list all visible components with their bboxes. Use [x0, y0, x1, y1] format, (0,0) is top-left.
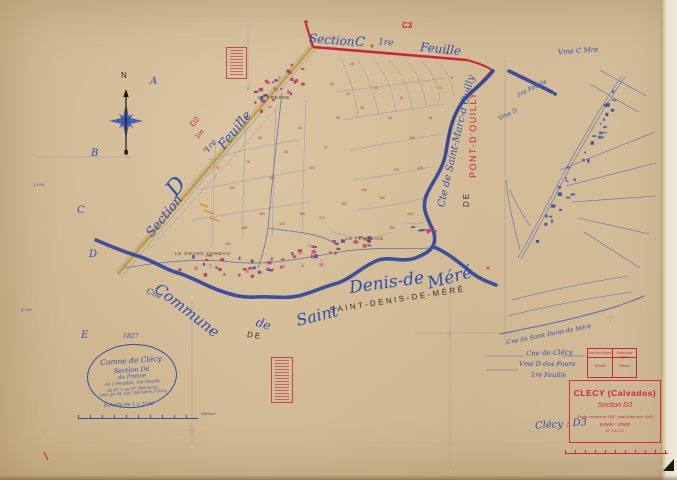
map-scale: Échelle : 1/2500	[600, 422, 630, 427]
cartouche-year: 1827	[123, 334, 138, 340]
inset-fours-label: Vme D des Fours	[519, 361, 575, 368]
inset-feuille-label: 1re Feuille	[531, 372, 566, 379]
sheet-ref-c3: C3	[402, 22, 412, 30]
parcel-list-table-top	[226, 47, 247, 79]
red-scalebar	[565, 450, 668, 454]
reference-table-value: Néant	[588, 358, 612, 377]
reference-table-value: Néant	[612, 358, 636, 377]
compass-rose	[109, 89, 143, 155]
title-block: CLECY (Calvados) Section D3 Feuille dres…	[569, 380, 661, 443]
pont-douilly-label: PONT-D'OUILLY	[469, 91, 478, 178]
map-revision-note: Feuille dressée en 1827, mise à jour pou…	[577, 415, 652, 419]
de-east-label: DE	[463, 192, 471, 207]
paper-bottom-edge	[0, 475, 677, 480]
reference-table-header: Nouveaux types	[612, 349, 636, 358]
paper-right-edge	[661, 0, 677, 480]
boundary-endpoint-dot	[553, 92, 557, 96]
section-c-letter: C	[354, 36, 365, 50]
reference-table: Anciens types Nouveaux types Néant Néant	[587, 348, 637, 378]
map-title: CLECY (Calvados)	[574, 388, 656, 398]
cadastral-map-sheet: N Section C 1re Feuille C3 Section D 1re…	[0, 0, 677, 480]
section-c-sheet-number: 1re	[378, 38, 394, 48]
compass-north-label: N	[121, 72, 127, 80]
map-parcel-range: N° 3 A 171	[606, 429, 624, 433]
section-c-script: Section	[309, 32, 356, 48]
scalebar-unit: Mètres	[201, 412, 215, 416]
map-section: Section D3	[598, 402, 632, 409]
parcel-lines	[136, 58, 454, 250]
parcel-list-table-bottom	[271, 357, 293, 403]
corner-fold-mark	[663, 459, 674, 471]
reference-table-header: Anciens types	[588, 349, 612, 358]
scalebar	[78, 415, 198, 419]
ochre-road	[116, 44, 316, 277]
